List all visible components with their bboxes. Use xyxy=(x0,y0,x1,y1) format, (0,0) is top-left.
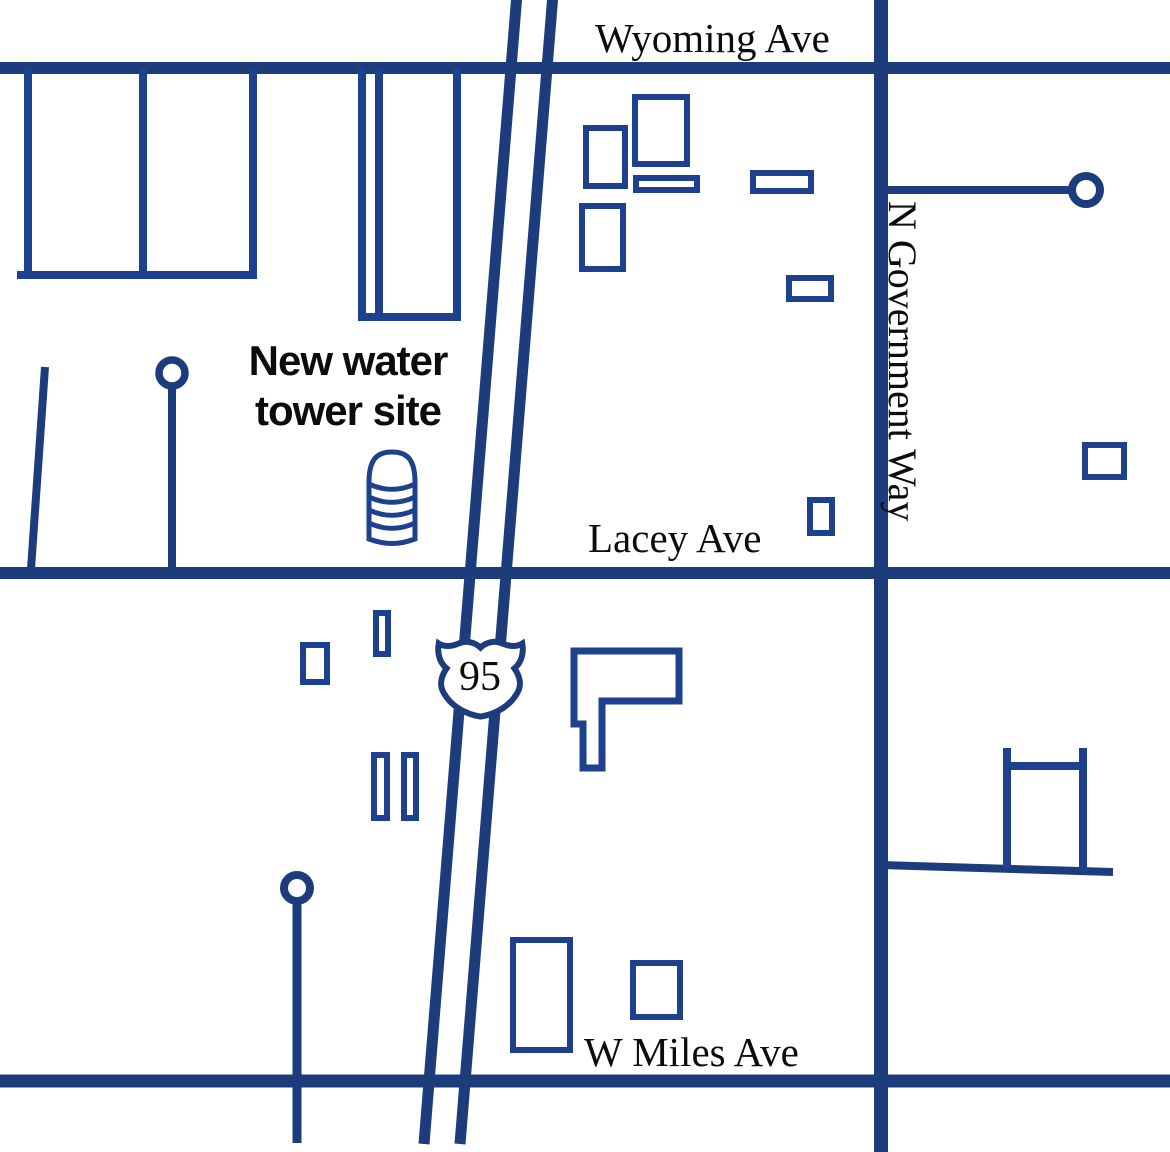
cul-de-sac-circle-northeast xyxy=(1072,176,1100,204)
water-tower-ring xyxy=(369,484,415,489)
parcel-block-northwest xyxy=(17,68,257,275)
water-tower-ring xyxy=(369,523,415,528)
building-outline xyxy=(376,613,388,654)
road-label-n-government-way: N Government Way xyxy=(882,201,922,521)
cul-de-sac-circle-west xyxy=(159,360,185,386)
building-outline xyxy=(810,500,832,533)
water-tower-icon xyxy=(369,452,415,544)
map-linework xyxy=(0,0,1170,1152)
parcel-block-southeast xyxy=(1003,748,1087,872)
site-label-line2: tower site xyxy=(255,387,441,434)
building-outline xyxy=(513,940,570,1050)
street-map: Wyoming Ave N Government Way Lacey Ave W… xyxy=(0,0,1170,1152)
street-stub-northwest xyxy=(31,367,45,569)
building-outline xyxy=(374,755,387,818)
road-label-lacey-ave: Lacey Ave xyxy=(588,517,761,560)
water-tower-ring xyxy=(369,510,415,515)
building-outline xyxy=(789,278,831,299)
road-label-w-miles-ave: W Miles Ave xyxy=(584,1031,799,1074)
side-street-southeast xyxy=(881,865,1113,872)
building-outline xyxy=(636,178,697,190)
road-label-wyoming-ave: Wyoming Ave xyxy=(595,17,830,60)
l-shaped-building xyxy=(574,651,679,768)
parcel-block-north xyxy=(358,68,461,317)
water-tower-ring xyxy=(369,497,415,502)
new-water-tower-site-label: New water tower site xyxy=(235,336,461,436)
building-outline xyxy=(582,206,623,269)
building-outline xyxy=(1085,445,1124,477)
building-outline xyxy=(586,128,625,186)
building-outline xyxy=(753,173,811,191)
cul-de-sac-circle-south xyxy=(284,875,310,901)
building-outline xyxy=(404,755,416,818)
building-outline xyxy=(633,963,680,1017)
building-outline xyxy=(303,645,327,682)
site-label-line1: New water xyxy=(249,337,448,384)
building-outline xyxy=(635,97,687,164)
highway-95-number: 95 xyxy=(440,655,520,699)
buildings xyxy=(17,68,1124,1050)
